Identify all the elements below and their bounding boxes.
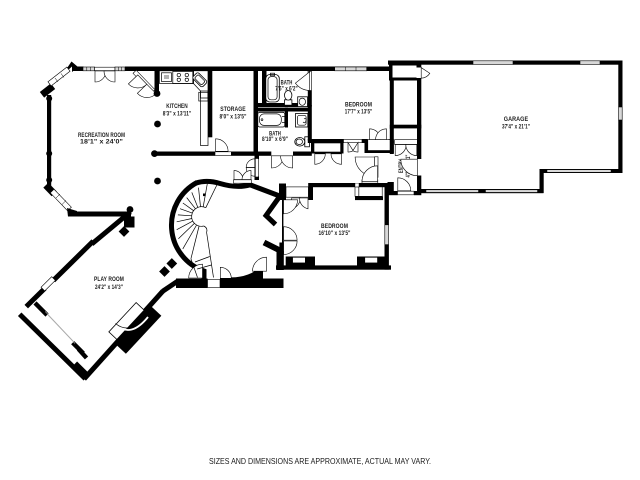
svg-text:17'7" x 13'5": 17'7" x 13'5" <box>345 109 373 116</box>
svg-text:16'10" x 13'5": 16'10" x 13'5" <box>319 230 351 237</box>
svg-text:SIZES AND DIMENSIONS ARE APPRO: SIZES AND DIMENSIONS ARE APPROXIMATE, AC… <box>209 457 431 466</box>
svg-text:24'2" x 14'3": 24'2" x 14'3" <box>95 284 123 291</box>
svg-text:8'0" x 13'5": 8'0" x 13'5" <box>220 114 247 121</box>
svg-text:18'1" x 24'0": 18'1" x 24'0" <box>80 139 123 146</box>
svg-text:8'3" x 13'11": 8'3" x 13'11" <box>163 111 192 118</box>
svg-text:GARAGE: GARAGE <box>504 116 529 123</box>
svg-text:7'6" x 6'2": 7'6" x 6'2" <box>275 86 298 93</box>
svg-text:37'4" x 21'1": 37'4" x 21'1" <box>502 124 530 131</box>
svg-text:BEDROOM: BEDROOM <box>345 102 372 109</box>
svg-text:BEDROOM: BEDROOM <box>321 223 348 230</box>
svg-text:8'10" x 6'9": 8'10" x 6'9" <box>262 136 288 143</box>
svg-text:PLAY ROOM: PLAY ROOM <box>94 276 124 283</box>
svg-text:STORAGE: STORAGE <box>220 106 246 113</box>
svg-text:KITCHEN: KITCHEN <box>166 103 188 110</box>
